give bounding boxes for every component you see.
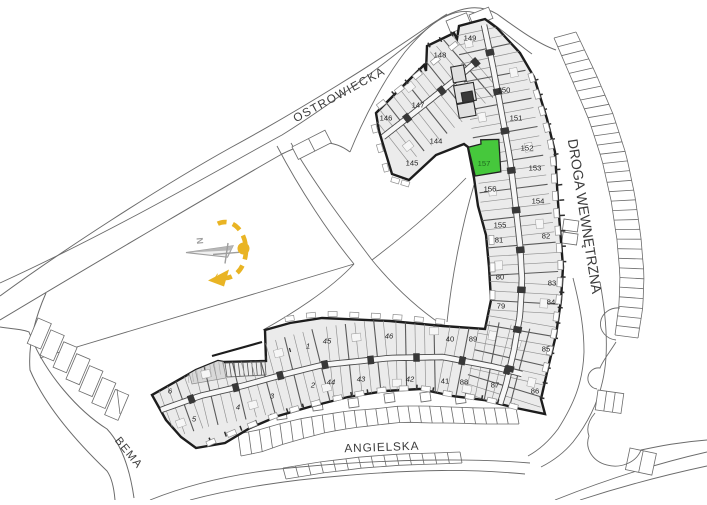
svg-text:83: 83: [548, 279, 556, 288]
svg-text:87: 87: [491, 381, 499, 390]
svg-text:89: 89: [469, 335, 477, 344]
svg-text:40: 40: [446, 335, 454, 344]
svg-text:153: 153: [529, 164, 542, 173]
svg-text:147: 147: [412, 101, 425, 110]
svg-text:157: 157: [478, 159, 491, 168]
svg-text:150: 150: [498, 86, 511, 95]
svg-text:45: 45: [323, 337, 332, 346]
svg-text:85: 85: [542, 345, 550, 354]
svg-text:82: 82: [542, 232, 550, 241]
svg-text:152: 152: [521, 144, 534, 153]
svg-text:42: 42: [406, 375, 415, 384]
svg-text:N: N: [195, 237, 206, 244]
svg-text:1: 1: [306, 342, 310, 351]
svg-text:79: 79: [497, 302, 505, 311]
svg-text:41: 41: [441, 377, 449, 386]
svg-text:146: 146: [380, 114, 393, 123]
svg-text:2: 2: [310, 381, 316, 390]
svg-text:43: 43: [357, 375, 366, 384]
svg-text:151: 151: [510, 114, 523, 123]
svg-text:156: 156: [484, 185, 497, 194]
svg-text:144: 144: [430, 137, 443, 146]
svg-text:81: 81: [495, 236, 503, 245]
svg-text:155: 155: [494, 221, 507, 230]
svg-text:44: 44: [327, 378, 335, 387]
svg-text:145: 145: [406, 159, 419, 168]
svg-text:149: 149: [464, 34, 477, 43]
svg-text:4: 4: [236, 403, 240, 412]
svg-text:86: 86: [531, 387, 539, 396]
svg-text:148: 148: [434, 51, 447, 60]
svg-text:ANGIELSKA: ANGIELSKA: [344, 439, 419, 456]
svg-text:88: 88: [460, 378, 468, 387]
svg-text:46: 46: [385, 332, 394, 341]
svg-text:154: 154: [532, 197, 545, 206]
svg-text:80: 80: [496, 273, 504, 282]
svg-text:84: 84: [547, 298, 555, 307]
